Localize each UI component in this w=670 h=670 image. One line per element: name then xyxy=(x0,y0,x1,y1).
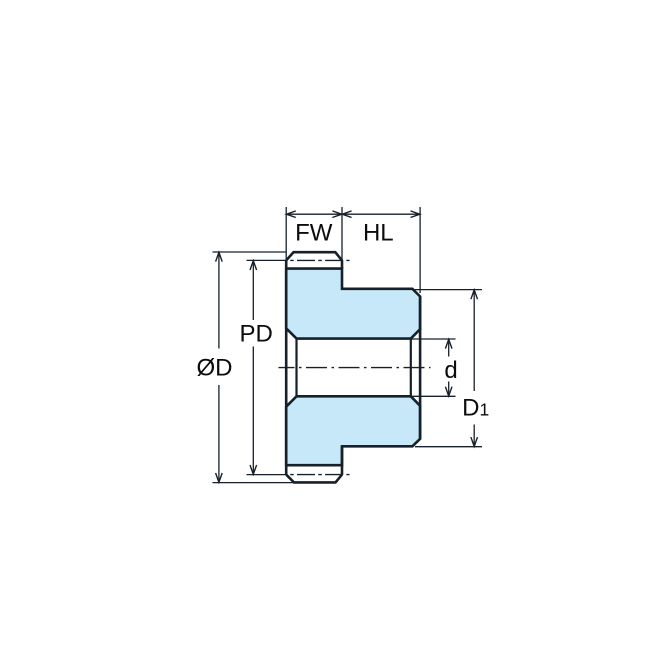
svg-text:PD: PD xyxy=(240,321,273,348)
svg-text:d: d xyxy=(444,357,457,384)
svg-text:HL: HL xyxy=(363,219,394,246)
svg-text:D1: D1 xyxy=(462,395,489,422)
svg-text:ØD: ØD xyxy=(197,355,233,382)
svg-text:FW: FW xyxy=(295,219,333,246)
